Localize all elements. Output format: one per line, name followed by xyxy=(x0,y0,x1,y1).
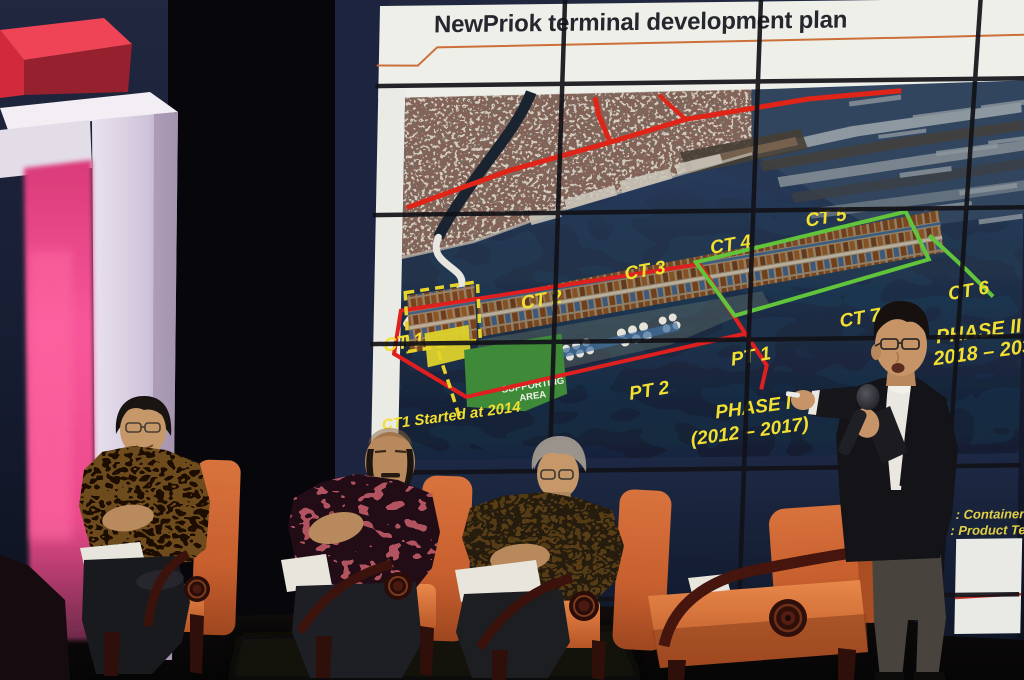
svg-text:NewPriok terminal development: NewPriok terminal development plan xyxy=(434,6,848,38)
svg-text:: Container: : Container xyxy=(956,506,1024,522)
svg-text:: Product Te: : Product Te xyxy=(950,522,1024,538)
